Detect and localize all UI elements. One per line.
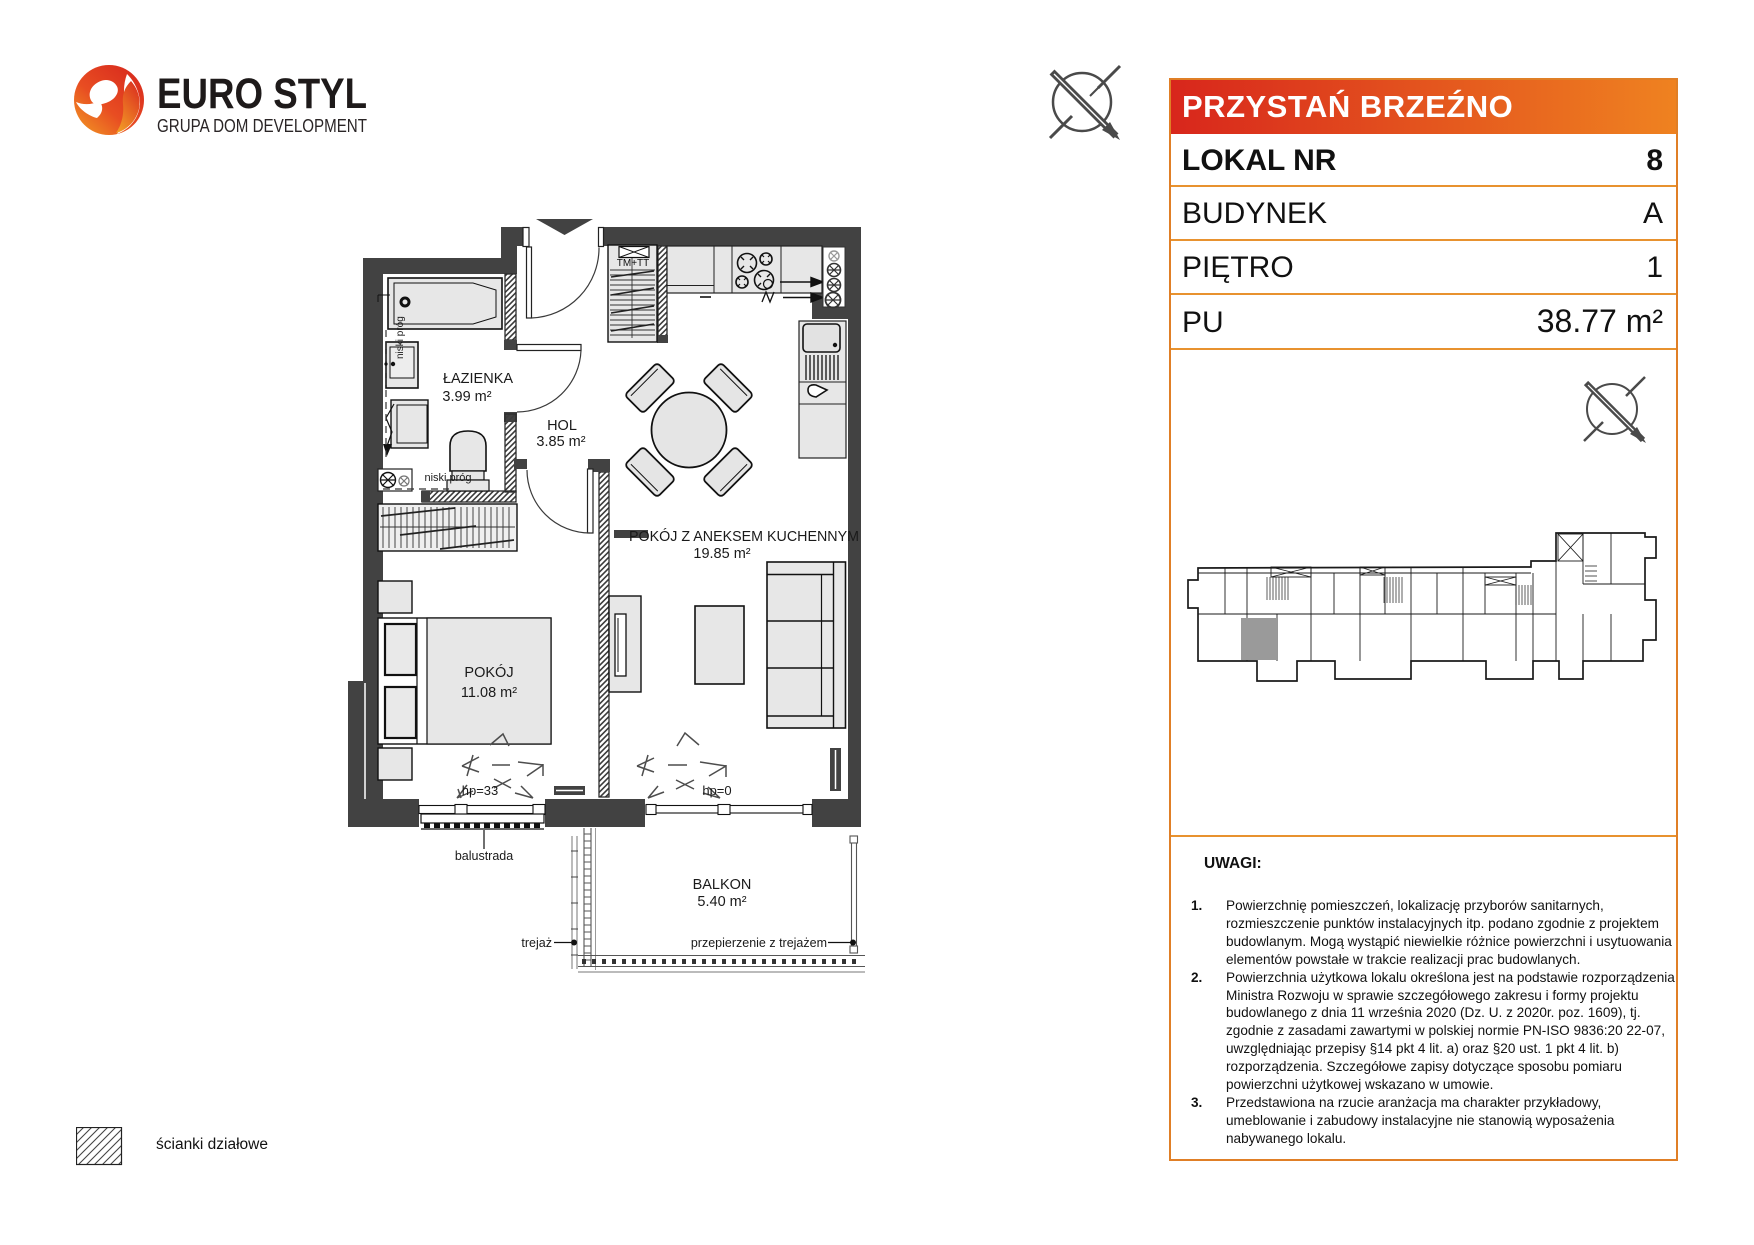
svg-text:TM+TT: TM+TT: [617, 258, 650, 269]
svg-text:hp=0: hp=0: [702, 783, 731, 798]
svg-text:niski próg: niski próg: [395, 316, 406, 359]
svg-text:balustrada: balustrada: [455, 849, 513, 863]
svg-text:ŁAZIENKA: ŁAZIENKA: [443, 371, 513, 387]
svg-text:3.99 m²: 3.99 m²: [442, 389, 491, 405]
svg-text:niski próg: niski próg: [424, 472, 471, 484]
svg-text:BALKON: BALKON: [693, 877, 752, 893]
svg-text:HOL: HOL: [547, 418, 577, 434]
svg-text:19.85 m²: 19.85 m²: [693, 546, 750, 562]
svg-text:5.40 m²: 5.40 m²: [697, 894, 746, 910]
svg-text:3.85 m²: 3.85 m²: [536, 434, 585, 450]
svg-text:POKÓJ Z ANEKSEM KUCHENNYM: POKÓJ Z ANEKSEM KUCHENNYM: [629, 528, 859, 545]
svg-text:przepierzenie z trejażem: przepierzenie z trejażem: [691, 936, 827, 950]
svg-text:11.08 m²: 11.08 m²: [461, 685, 517, 701]
svg-text:trejaż: trejaż: [521, 936, 552, 950]
svg-text:hp=33: hp=33: [462, 783, 499, 798]
svg-text:POKÓJ: POKÓJ: [464, 664, 513, 681]
